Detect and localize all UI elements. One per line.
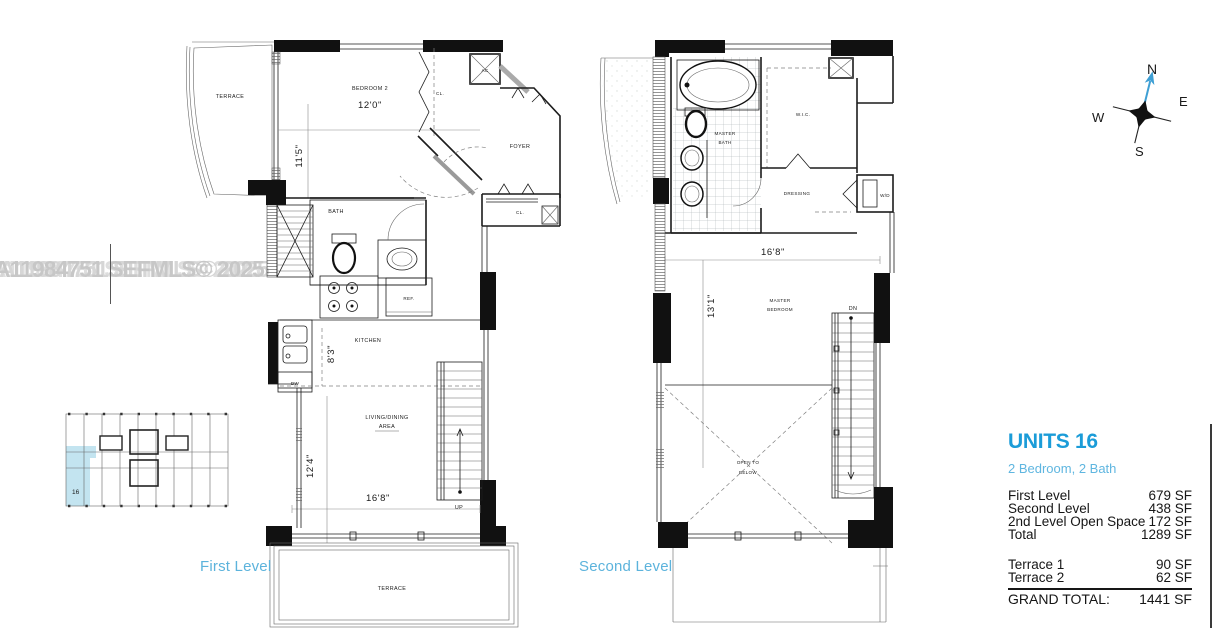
- master-bedroom-label-2: BEDROOM: [767, 307, 793, 312]
- bath-label: BATH: [328, 209, 344, 215]
- terrace-row-2: Terrace 2 62 SF: [1008, 571, 1192, 584]
- second-level-caption: Second Level: [579, 558, 672, 575]
- plan-edge-line: [110, 244, 111, 304]
- up-label: UP: [455, 505, 463, 511]
- area-row-total: Total 1289 SF: [1008, 528, 1192, 541]
- foyer-label: FOYER: [510, 144, 531, 150]
- fridge-label: REF.: [403, 296, 414, 301]
- terrace1-floor: [193, 45, 272, 196]
- grand-total: GRAND TOTAL: 1441 SF: [1008, 592, 1192, 607]
- bedroom2-width: 12'0": [358, 100, 382, 111]
- unit-subtitle: 2 Bedroom, 2 Bath: [1008, 461, 1192, 476]
- bedroom2-depth: 11'5": [294, 144, 305, 167]
- dn-label: DN: [849, 306, 858, 312]
- compass-w: W: [1092, 110, 1105, 125]
- terrace-rows: Terrace 1 90 SF Terrace 2 62 SF: [1008, 558, 1192, 584]
- master-depth: 13'1": [706, 294, 717, 318]
- closet-lower-label: CL.: [516, 210, 524, 215]
- compass-rose: N E W S: [1082, 52, 1202, 172]
- ac-label: AC: [482, 68, 489, 73]
- wic-label: W.I.C.: [796, 112, 810, 117]
- master-bedroom-label-1: MASTER: [770, 298, 791, 303]
- terrace1-label: TERRACE: [216, 94, 245, 100]
- compass-s: S: [1135, 144, 1144, 159]
- area-rows: First Level 679 SF Second Level 438 SF 2…: [1008, 489, 1192, 541]
- living-label-1: LIVING/DINING: [365, 415, 408, 421]
- master-bath-label-2: BATH: [718, 140, 731, 145]
- compass-e: E: [1179, 94, 1188, 109]
- highlighted-unit: [66, 446, 96, 506]
- washer-dryer-label: W/D: [880, 193, 890, 198]
- total-divider: [1008, 588, 1192, 590]
- dishwasher-label: DW: [291, 381, 300, 386]
- key-plan-unit-number: 16: [72, 489, 80, 496]
- kitchen-label: KITCHEN: [355, 338, 381, 344]
- second-level-plan: MASTER BATH W.I.C. DRESSING W/D 16'8": [595, 28, 915, 628]
- living-depth: 12'4": [305, 454, 316, 478]
- master-width: 16'8": [761, 247, 785, 258]
- living-label-2: AREA: [379, 424, 395, 430]
- first-level-caption: First Level: [200, 558, 271, 575]
- first-level-plan: TERRACE BEDROOM 2 12'0" 11'5" CL. AC: [182, 28, 562, 628]
- right-edge-rule: [1210, 424, 1212, 628]
- floorplan-sheet: A11984751 SEFMLS© 2025 TERRACE: [0, 0, 1222, 628]
- compass-n: N: [1147, 61, 1157, 77]
- living-width: 16'8": [366, 493, 390, 504]
- bedroom2-label: BEDROOM 2: [352, 86, 388, 92]
- master-bath-label-1: MASTER: [715, 131, 736, 136]
- key-plan: 16: [52, 388, 242, 533]
- unit-info-panel: UNITS 16 2 Bedroom, 2 Bath First Level 6…: [1008, 430, 1192, 607]
- terrace-bottom-label: TERRACE: [378, 586, 407, 592]
- open-below-label-1: OPEN TO: [737, 460, 760, 465]
- dressing-label: DRESSING: [784, 191, 811, 196]
- kitchen-dim: 8'3": [326, 345, 337, 363]
- open-below-label-2: BELOW: [739, 470, 757, 475]
- unit-title: UNITS 16: [1008, 430, 1192, 454]
- closet-upper-label: CL.: [436, 91, 444, 96]
